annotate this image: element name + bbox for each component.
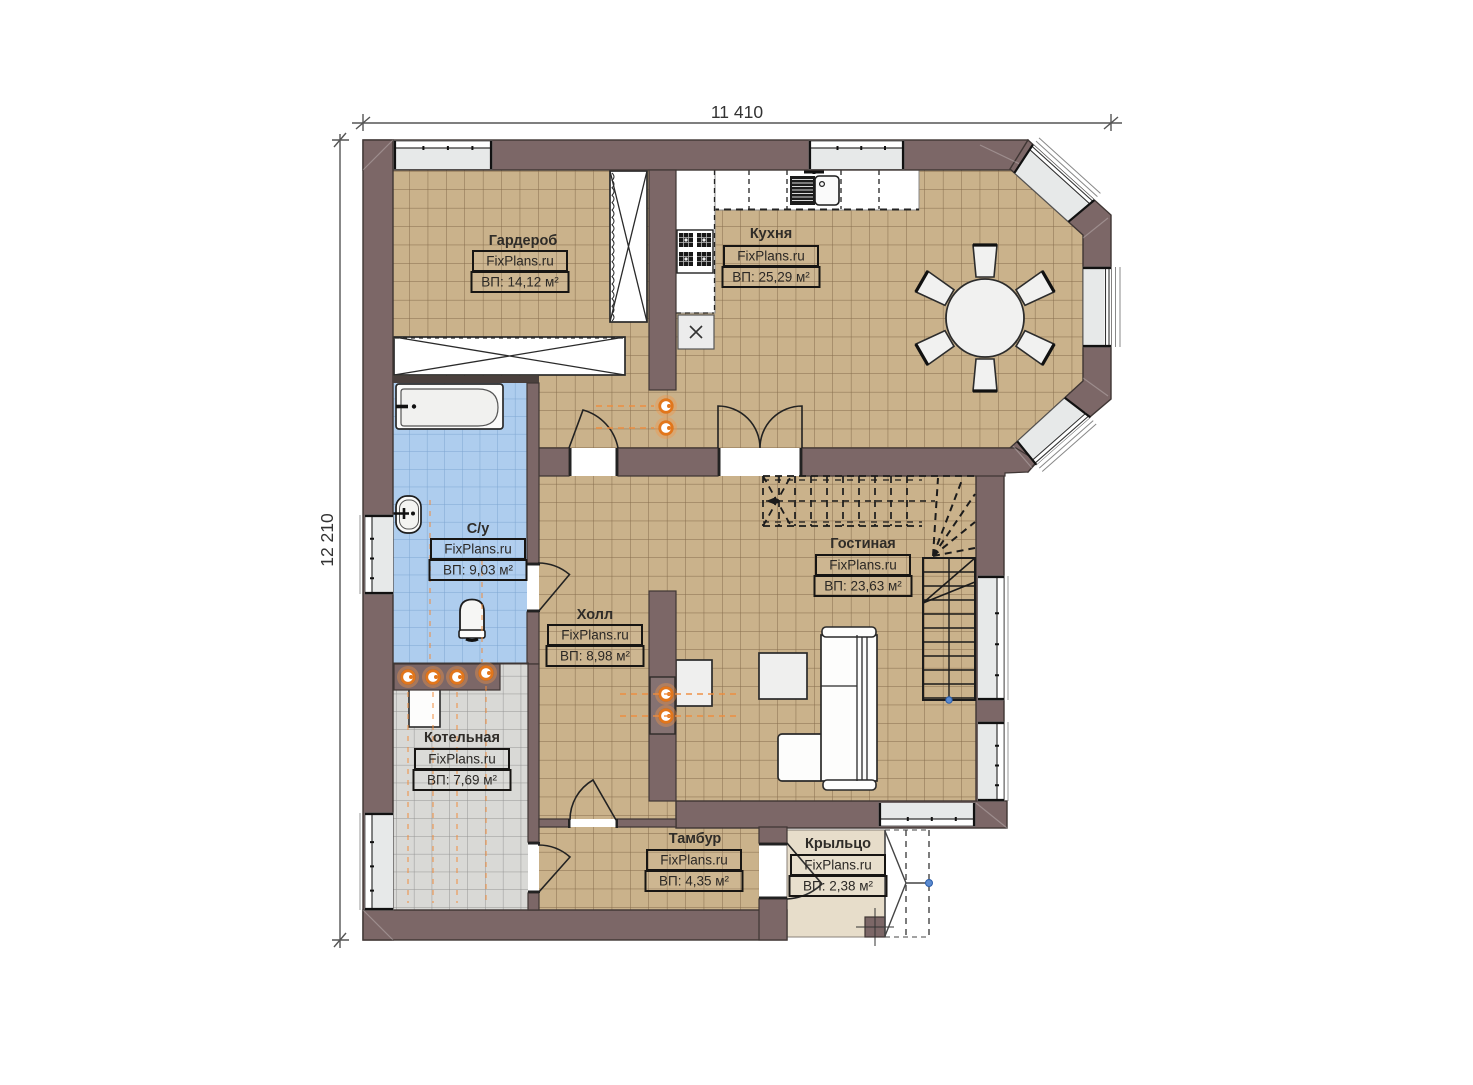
svg-text:ВП: 4,35 м²: ВП: 4,35 м²	[659, 874, 730, 889]
svg-text:Холл: Холл	[577, 607, 613, 623]
svg-text:Котельная: Котельная	[424, 730, 500, 746]
svg-text:ВП: 25,29 м²: ВП: 25,29 м²	[732, 270, 810, 285]
svg-text:Тамбур: Тамбур	[669, 831, 722, 847]
svg-text:FixPlans.ru: FixPlans.ru	[804, 858, 872, 873]
svg-text:Гостиная: Гостиная	[830, 536, 896, 552]
svg-text:ВП: 9,03 м²: ВП: 9,03 м²	[443, 563, 514, 578]
svg-text:FixPlans.ru: FixPlans.ru	[428, 752, 496, 767]
svg-text:ВП: 2,38 м²: ВП: 2,38 м²	[803, 879, 874, 894]
svg-text:ВП: 8,98 м²: ВП: 8,98 м²	[560, 649, 631, 664]
svg-text:FixPlans.ru: FixPlans.ru	[829, 558, 897, 573]
svg-text:С/у: С/у	[467, 521, 490, 537]
svg-text:ВП: 23,63 м²: ВП: 23,63 м²	[824, 579, 902, 594]
svg-text:Кухня: Кухня	[750, 226, 792, 242]
svg-text:12 210: 12 210	[317, 513, 337, 567]
svg-text:FixPlans.ru: FixPlans.ru	[561, 628, 629, 643]
svg-text:FixPlans.ru: FixPlans.ru	[737, 249, 805, 264]
svg-text:Крыльцо: Крыльцо	[805, 836, 871, 852]
svg-text:FixPlans.ru: FixPlans.ru	[444, 542, 512, 557]
svg-text:ВП: 14,12 м²: ВП: 14,12 м²	[481, 275, 559, 290]
svg-text:FixPlans.ru: FixPlans.ru	[660, 853, 728, 868]
svg-text:ВП: 7,69 м²: ВП: 7,69 м²	[427, 773, 498, 788]
svg-text:11 410: 11 410	[711, 102, 763, 122]
svg-text:FixPlans.ru: FixPlans.ru	[486, 254, 554, 269]
svg-text:Гардероб: Гардероб	[489, 233, 558, 249]
